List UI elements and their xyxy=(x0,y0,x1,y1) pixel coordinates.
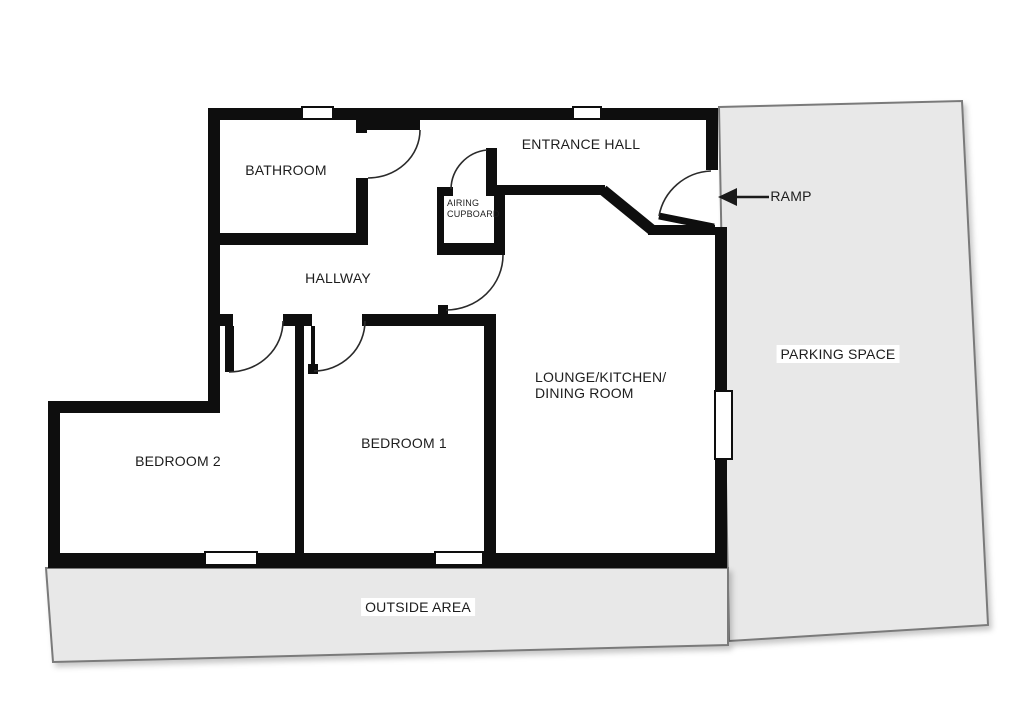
wall-step xyxy=(48,401,220,413)
parking-space-label: PARKING SPACE xyxy=(777,345,900,363)
wall-bedroom-divider xyxy=(295,326,304,553)
entrance-hall-label: ENTRANCE HALL xyxy=(522,136,641,152)
bedroom2-door-leaf xyxy=(225,326,234,372)
wall-left-upper xyxy=(208,108,220,413)
bathroom-door-leaf xyxy=(358,119,420,130)
airing-cupboard-label-line2: CUPBOARD xyxy=(447,209,500,220)
outside-area-label: OUTSIDE AREA xyxy=(361,598,475,616)
window-bedroom2 xyxy=(205,552,257,565)
window-bedroom1 xyxy=(435,552,483,565)
wall-hallway-seg-c xyxy=(362,314,496,326)
bedroom2-label: BEDROOM 2 xyxy=(135,453,221,469)
wall-top xyxy=(208,108,718,120)
parking-space-area xyxy=(719,101,988,641)
wall-lounge-west xyxy=(484,326,496,553)
bedroom1-door-stop xyxy=(308,364,318,374)
lounge-label-line2: DINING ROOM xyxy=(535,385,666,401)
window-entrance-hall xyxy=(573,107,601,119)
lounge-label-line1: LOUNGE/KITCHEN/ xyxy=(535,369,666,385)
wall-left-lower xyxy=(48,401,60,568)
wall-bathroom-east xyxy=(356,178,368,245)
wall-right-upper xyxy=(706,108,718,170)
airing-cupboard-label: AIRING CUPBOARD xyxy=(447,198,500,219)
airing-cupboard-label-line1: AIRING xyxy=(447,198,500,209)
wall-bathroom-south xyxy=(208,233,368,245)
bedroom1-label: BEDROOM 1 xyxy=(361,435,447,451)
ramp-label: RAMP xyxy=(770,188,811,204)
bathroom-label: BATHROOM xyxy=(245,162,326,178)
wall-hallway-seg-b xyxy=(283,314,312,326)
building-footprint xyxy=(48,108,718,568)
cupboard-door-leaf xyxy=(486,148,497,196)
wall-bottom xyxy=(48,553,727,568)
wall-cupboard-south xyxy=(437,243,505,255)
window-bathroom xyxy=(302,107,333,119)
wall-hallway-seg-a xyxy=(208,314,233,326)
window-lounge xyxy=(715,391,732,459)
hallway-label: HALLWAY xyxy=(305,270,371,286)
wall-entrance-south xyxy=(505,185,605,195)
lounge-label: LOUNGE/KITCHEN/ DINING ROOM xyxy=(535,369,666,401)
floor-plan: BATHROOM ENTRANCE HALL HALLWAY AIRING CU… xyxy=(0,0,1024,724)
